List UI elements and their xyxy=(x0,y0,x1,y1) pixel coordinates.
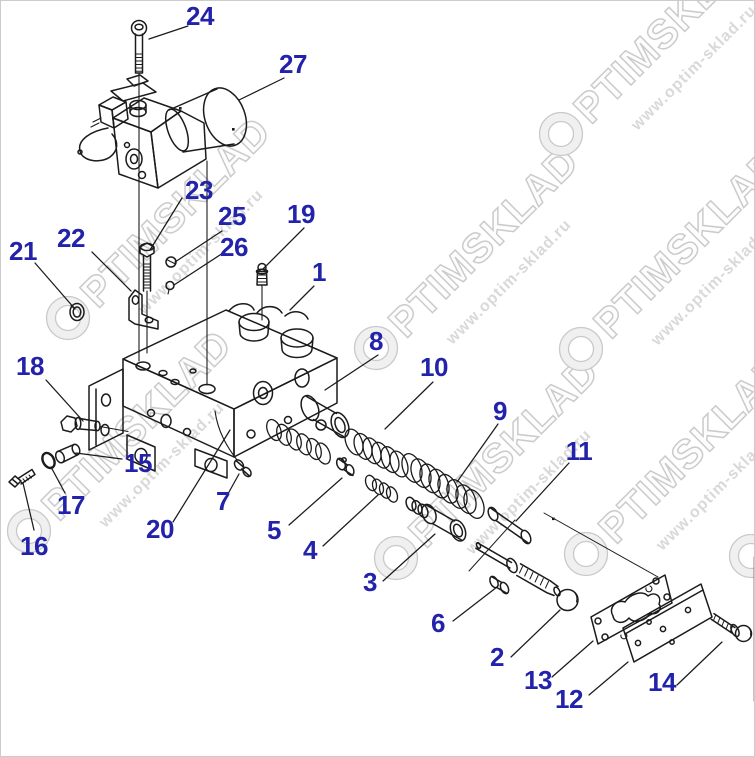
leader-line-2 xyxy=(511,610,560,657)
leader-line-10 xyxy=(385,382,433,429)
leader-line-4 xyxy=(323,495,378,546)
callout-label-11: 11 xyxy=(566,438,593,464)
leader-line-6 xyxy=(453,587,497,621)
exploded-parts-diagram: PTIMSKLADwww.optim-sklad.ruPTIMSKLADwww.… xyxy=(1,1,755,757)
callout-label-18: 18 xyxy=(16,353,44,379)
callout-label-1: 1 xyxy=(312,259,326,285)
part-16-screw xyxy=(9,470,35,488)
leader-line-7 xyxy=(229,474,239,492)
part-10-spring xyxy=(342,426,412,479)
callout-label-26: 26 xyxy=(220,234,248,260)
part-8-bushing xyxy=(298,393,353,440)
part-13-gasket xyxy=(591,575,672,644)
watermark-instance: PTIMSKLADwww.optim-sklad.ru xyxy=(550,139,755,404)
callout-label-24: 24 xyxy=(186,3,214,29)
callout-label-10: 10 xyxy=(420,354,448,380)
callout-label-5: 5 xyxy=(267,517,281,543)
part-4-spring xyxy=(363,474,399,504)
part-5-detent xyxy=(335,457,355,477)
callout-label-27: 27 xyxy=(279,51,307,77)
watermark-brand-text: PTIMSKLAD xyxy=(590,344,755,552)
callout-label-13: 13 xyxy=(524,667,552,693)
leader-line-27 xyxy=(239,78,284,100)
leader-line-24 xyxy=(149,26,188,39)
leader-line-18 xyxy=(46,380,83,421)
callout-label-6: 6 xyxy=(431,610,445,636)
leader-line-14 xyxy=(677,642,722,685)
leader-line-19 xyxy=(263,228,304,269)
callout-label-25: 25 xyxy=(218,203,246,229)
callout-label-7: 7 xyxy=(216,488,230,514)
callout-label-12: 12 xyxy=(555,686,583,712)
callout-label-22: 22 xyxy=(57,225,85,251)
callout-label-8: 8 xyxy=(369,328,383,354)
callout-label-9: 9 xyxy=(493,398,507,424)
diagram-page: PTIMSKLADwww.optim-sklad.ruPTIMSKLADwww.… xyxy=(0,0,755,757)
callout-label-20: 20 xyxy=(146,516,174,542)
leader-line-5 xyxy=(289,478,342,525)
callout-label-16: 16 xyxy=(20,533,48,559)
leader-line-13 xyxy=(552,641,593,677)
callout-label-21: 21 xyxy=(9,238,37,264)
part-17-oring xyxy=(40,451,57,470)
callout-label-19: 19 xyxy=(287,201,315,227)
callout-label-15: 15 xyxy=(124,450,152,476)
leader-line-12 xyxy=(589,662,628,695)
callout-label-4: 4 xyxy=(303,537,317,563)
leader-line-1 xyxy=(290,286,314,310)
part-14-bolt xyxy=(711,614,751,642)
callout-label-2: 2 xyxy=(490,644,504,670)
callout-label-3: 3 xyxy=(363,569,377,595)
callout-label-17: 17 xyxy=(57,492,85,518)
callout-label-23: 23 xyxy=(185,177,213,203)
callout-label-14: 14 xyxy=(648,669,676,695)
